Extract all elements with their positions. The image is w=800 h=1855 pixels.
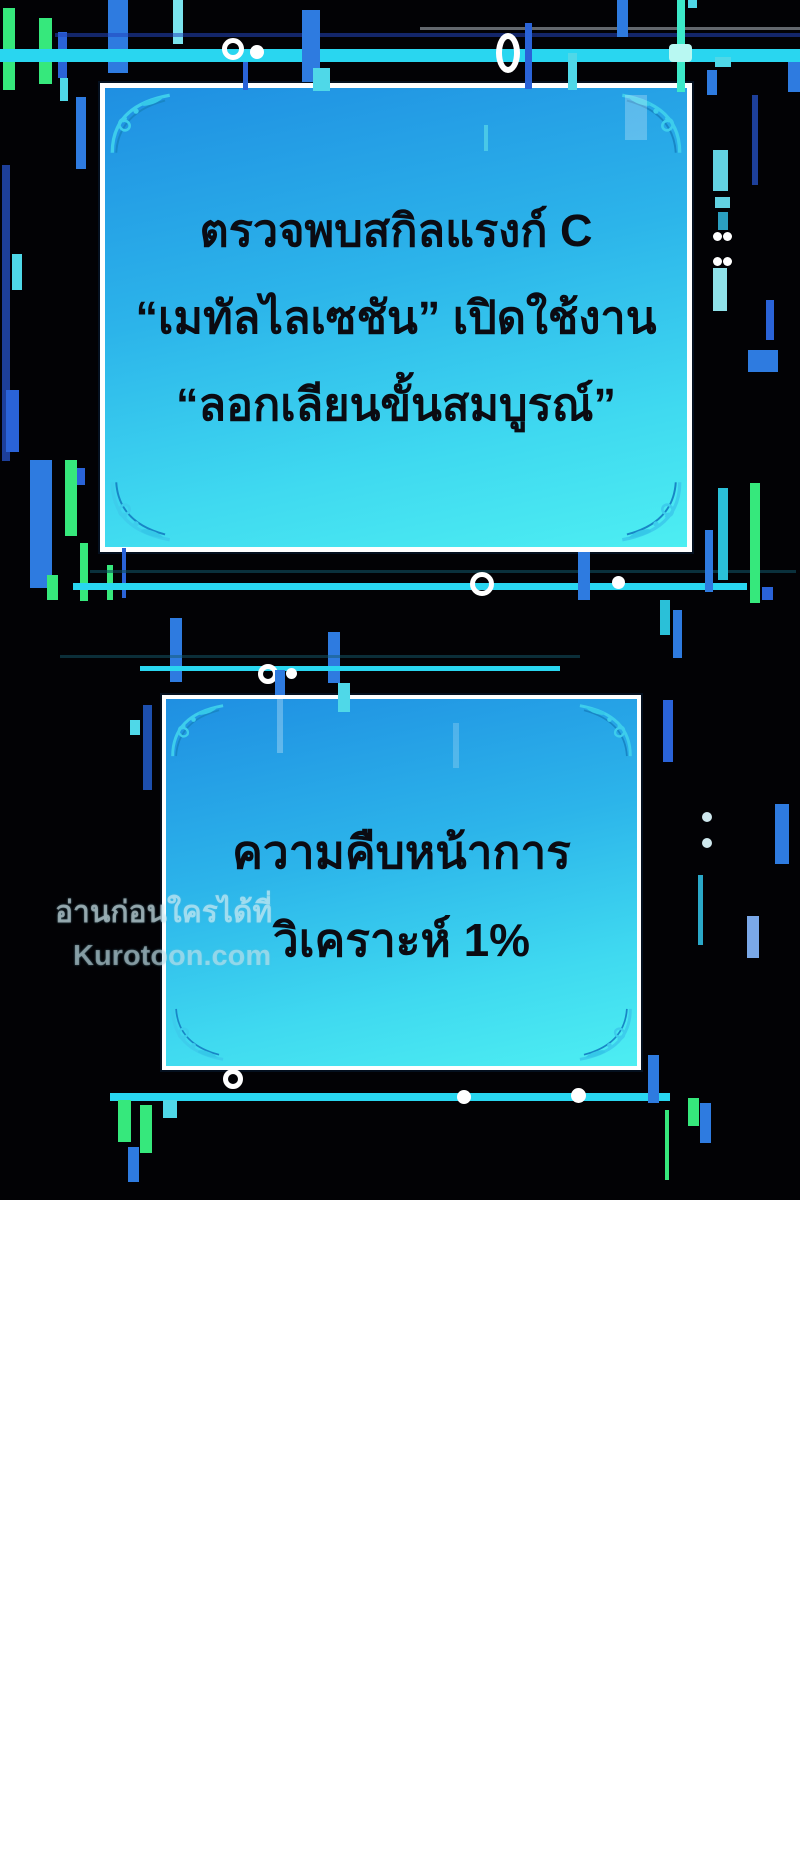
glitch-line — [110, 1093, 670, 1101]
glitch-dot — [286, 668, 297, 679]
glitch-dot — [571, 1088, 586, 1103]
glitch-dot — [702, 838, 712, 848]
glitch-glow — [669, 44, 692, 62]
glitch-bar — [688, 0, 697, 8]
glitch-line — [420, 27, 800, 30]
glitch-glow — [625, 95, 647, 140]
glitch-ring — [470, 572, 494, 596]
corner-flourish-icon — [577, 1006, 635, 1064]
glitch-line — [55, 33, 800, 37]
glitch-line — [140, 666, 560, 671]
glitch-bar — [718, 488, 728, 580]
glitch-bar — [766, 300, 774, 340]
glitch-bar — [118, 1100, 131, 1142]
watermark-text: อ่านก่อนใครได้ที่ — [55, 898, 272, 928]
glitch-bar — [752, 95, 758, 185]
corner-flourish-icon — [168, 701, 226, 759]
glitch-bar — [243, 62, 248, 90]
glitch-bar — [762, 587, 773, 600]
watermark-site: Kurotoon.com — [73, 942, 272, 971]
blank-page-area — [0, 1200, 800, 1855]
system-message-box-2: ความคืบหน้าการ วิเคราะห์ 1% — [162, 695, 641, 1070]
glitch-bar — [128, 1147, 139, 1182]
system-text-line: ความคืบหน้าการ — [232, 808, 571, 896]
watermark: อ่านก่อนใครได้ที่ Kurotoon.com — [55, 898, 272, 971]
glitch-bar — [47, 575, 58, 600]
system-text-line: วิเคราะห์ 1% — [273, 896, 530, 984]
glitch-bar — [665, 1110, 669, 1180]
corner-flourish-icon — [107, 90, 173, 156]
glitch-line — [73, 583, 747, 590]
corner-flourish-icon — [619, 479, 685, 545]
glitch-bar — [80, 543, 88, 601]
glitch-bar — [122, 548, 126, 598]
glitch-line — [90, 570, 796, 573]
system-text-line: “ลอกเลียนขั้นสมบูรณ์” — [176, 361, 616, 448]
glitch-bar — [648, 1055, 659, 1103]
glitch-bar — [60, 78, 68, 101]
glitch-glow — [453, 723, 459, 768]
scene-background: ตรวจพบสกิลแรงก์ C “เมทัลไลเซชัน” เปิดใช้… — [0, 0, 800, 1200]
glitch-bar — [140, 1105, 152, 1153]
glitch-bar — [163, 1100, 177, 1118]
glitch-dot — [702, 812, 712, 822]
glitch-bar — [747, 916, 759, 958]
webtoon-page: ตรวจพบสกิลแรงก์ C “เมทัลไลเซชัน” เปิดใช้… — [0, 0, 800, 1855]
system-text-line: “เมทัลไลเซชัน” เปิดใช้งาน — [136, 274, 657, 361]
glitch-dot — [713, 232, 722, 241]
glitch-glow — [277, 695, 283, 753]
glitch-bar — [673, 610, 682, 658]
glitch-bar — [788, 62, 800, 92]
glitch-bar — [698, 875, 703, 945]
glitch-bar — [617, 0, 628, 37]
glitch-bar — [688, 1098, 699, 1126]
glitch-bar — [275, 670, 285, 695]
glitch-bar — [748, 350, 778, 372]
glitch-dot — [723, 257, 732, 266]
glitch-bar — [77, 468, 85, 485]
glitch-bar — [660, 600, 670, 635]
glitch-bar — [170, 618, 182, 682]
glitch-ring — [223, 1069, 243, 1089]
glitch-ring — [222, 38, 244, 60]
glitch-dot — [713, 257, 722, 266]
glitch-bar — [718, 212, 728, 230]
system-message-box-1: ตรวจพบสกิลแรงก์ C “เมทัลไลเซชัน” เปิดใช้… — [100, 83, 692, 552]
glitch-bar — [173, 0, 183, 44]
glitch-bar — [775, 804, 789, 864]
glitch-bar — [6, 390, 19, 452]
glitch-dot — [250, 45, 264, 59]
glitch-line — [60, 655, 580, 658]
glitch-ring — [496, 33, 520, 73]
glitch-bar — [338, 683, 350, 712]
glitch-bar — [12, 254, 22, 290]
glitch-bar — [705, 530, 713, 592]
glitch-bar — [76, 97, 86, 169]
glitch-dot — [723, 232, 732, 241]
glitch-bar — [30, 460, 52, 588]
corner-flourish-icon — [577, 701, 635, 759]
glitch-bar — [143, 705, 152, 790]
glitch-bar — [713, 150, 728, 191]
glitch-bar — [750, 483, 760, 603]
corner-flourish-icon — [168, 1006, 226, 1064]
corner-flourish-icon — [107, 479, 173, 545]
glitch-bar — [663, 700, 673, 762]
glitch-bar — [484, 125, 488, 151]
glitch-dot — [612, 576, 625, 589]
system-text-line: ตรวจพบสกิลแรงก์ C — [200, 187, 593, 274]
glitch-bar — [578, 552, 590, 600]
glitch-bar — [568, 53, 577, 90]
glitch-bar — [525, 23, 532, 89]
glitch-bar — [313, 68, 330, 91]
glitch-bar — [715, 197, 730, 208]
glitch-bar — [65, 460, 77, 536]
glitch-bar — [700, 1103, 711, 1143]
glitch-dot — [457, 1090, 471, 1104]
glitch-bar — [713, 268, 727, 311]
glitch-bar — [130, 720, 140, 735]
glitch-bar — [707, 70, 717, 95]
glitch-bar — [715, 57, 731, 67]
